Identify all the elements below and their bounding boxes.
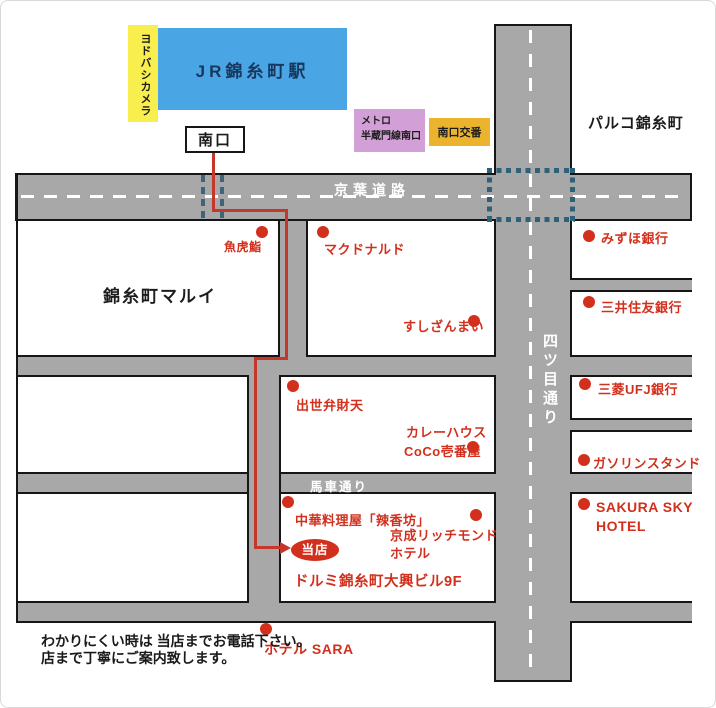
- shusse-benzaiten-dot: [287, 380, 299, 392]
- gas-station-dot: [578, 454, 590, 466]
- station-crosswalk-line: [220, 175, 224, 221]
- sakura-sky-hotel-label-line1: SAKURA SKY: [596, 499, 693, 515]
- uotora-sushi-dot: [256, 226, 268, 238]
- narrow-street-lower: [247, 375, 281, 603]
- route-segment: [285, 209, 288, 359]
- yotsume-street-road: [494, 24, 572, 682]
- station-crosswalk-line: [201, 175, 205, 221]
- route-segment: [212, 153, 215, 211]
- marui-label: 錦糸町マルイ: [103, 282, 217, 307]
- mcdonalds-label: マクドナルド: [324, 239, 405, 258]
- junction-patch: [496, 601, 570, 623]
- narrow-street-upper: [278, 221, 308, 357]
- richmond-hotel-label-line2: ホテル: [390, 543, 431, 562]
- crosswalk-top: [487, 168, 575, 173]
- middle-street-road: [17, 355, 692, 377]
- crosswalk-bottom: [487, 217, 575, 222]
- smbc-bank-label: 三井住友銀行: [601, 297, 682, 316]
- bottom-street-road: [17, 601, 692, 623]
- koban-label: 南口交番: [438, 124, 482, 140]
- keiyo-road-label: 京葉道路: [334, 180, 410, 200]
- sushizanmai-label: すしざんまい: [403, 316, 484, 335]
- metro-label-line1: メトロ: [361, 114, 425, 129]
- parco-label: パルコ錦糸町: [588, 112, 684, 133]
- south-exit-sign: 南口: [185, 126, 245, 153]
- smbc-bank-dot: [583, 296, 595, 308]
- uotora-sushi-label: 魚虎鮨: [224, 238, 262, 255]
- crosswalk-left: [487, 168, 492, 222]
- left-block-border: [16, 173, 18, 623]
- gas-station-label: ガソリンスタンド: [593, 453, 701, 472]
- sakura-sky-hotel-dot: [578, 498, 590, 510]
- richmond-hotel-dot: [470, 509, 482, 521]
- right-side-street-2: [570, 418, 692, 432]
- route-arrow-icon: [280, 542, 291, 554]
- route-segment: [254, 546, 282, 549]
- coco-ichibanya-dot: [467, 441, 479, 453]
- shop-building-label: ドルミ錦糸町大興ビル9F: [294, 570, 462, 591]
- right-side-street-1: [570, 278, 692, 292]
- yodobashi-label: ヨドバシカメラ: [137, 33, 153, 117]
- mufg-bank-label: 三菱UFJ銀行: [598, 379, 678, 398]
- yotsume-center-line: [529, 30, 532, 677]
- south-exit-label: 南口: [198, 129, 232, 150]
- access-map: 京葉道路 馬車通り 四ツ目通り ヨドバシカメラ JR錦糸町駅 南口 メトロ 半蔵…: [0, 0, 716, 708]
- bashamichi-road-label: 馬車通り: [310, 476, 368, 495]
- crosswalk-right: [570, 168, 575, 222]
- route-segment: [254, 357, 257, 548]
- mizuho-bank-dot: [583, 230, 595, 242]
- yodobashi-building: ヨドバシカメラ: [128, 25, 158, 122]
- shop-marker: 当店: [291, 539, 339, 561]
- junction-patch: [496, 472, 570, 494]
- mufg-bank-dot: [579, 378, 591, 390]
- yotsume-road-label: 四ツ目通り: [539, 333, 560, 428]
- coco-ichibanya-label-line1: カレーハウス: [406, 422, 487, 441]
- metro-exit-building: メトロ 半蔵門線南口: [354, 109, 425, 152]
- mizuho-bank-label: みずほ銀行: [601, 228, 669, 247]
- richmond-hotel-label-line1: 京成リッチモンド: [390, 525, 498, 544]
- jr-station-building: JR錦糸町駅: [158, 28, 347, 110]
- note-line2: 店まで丁寧にご案内致します。: [41, 648, 235, 668]
- route-segment: [212, 209, 288, 212]
- koban-building: 南口交番: [429, 118, 490, 146]
- route-segment: [254, 357, 288, 360]
- shusse-benzaiten-label: 出世弁財天: [296, 395, 364, 414]
- chinese-restaurant-dot: [282, 496, 294, 508]
- mcdonalds-dot: [317, 226, 329, 238]
- sakura-sky-hotel-label-line2: HOTEL: [596, 518, 646, 534]
- jr-station-label: JR錦糸町駅: [196, 57, 310, 82]
- metro-label-line2: 半蔵門線南口: [361, 129, 425, 144]
